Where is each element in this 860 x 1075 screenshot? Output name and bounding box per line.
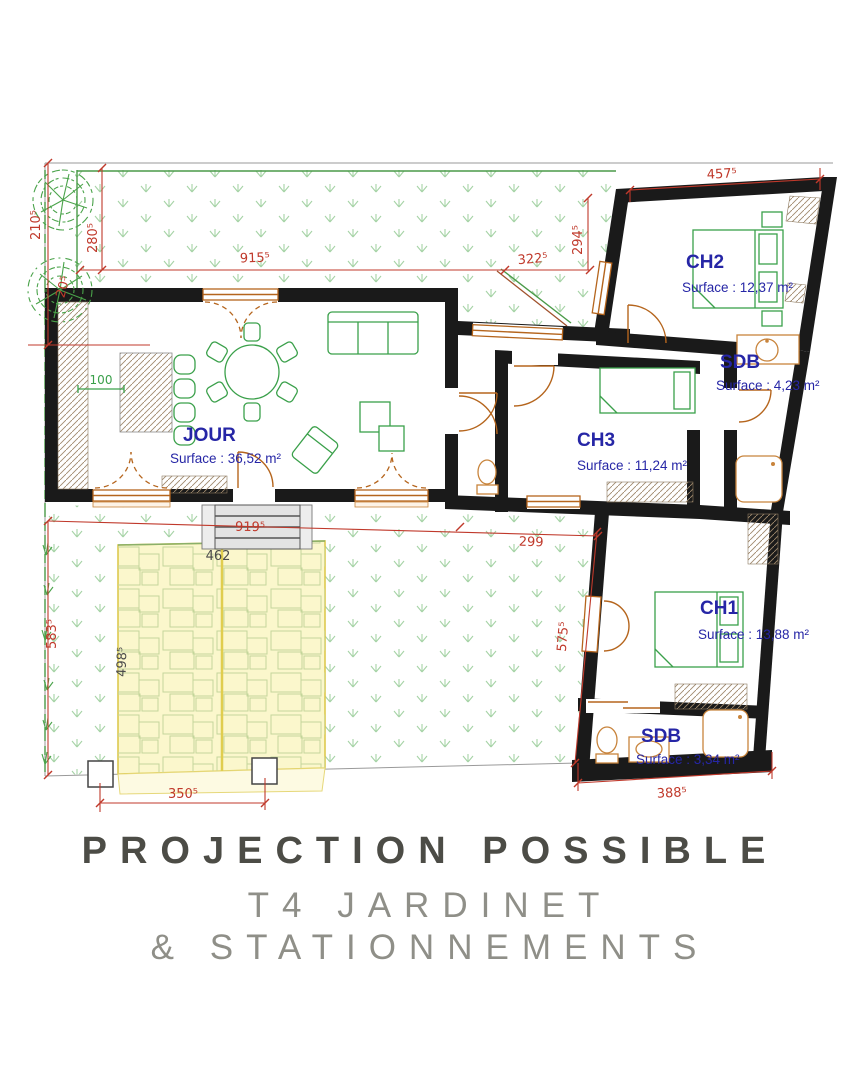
kitchen-counter: [120, 353, 172, 432]
floor-plan: 210⁵ 280⁵ 20⁵ 915⁵ 322⁵ 294⁵ 457⁵ 100 91…: [0, 0, 860, 826]
dim-ch2-setback: 294⁵: [571, 225, 586, 255]
ch3-bed: [600, 368, 695, 413]
dim-kitchen-clearance: 100: [90, 373, 113, 387]
dining-table: [205, 323, 299, 421]
jour-garden-door-arc: [205, 302, 241, 338]
side-table-2: [379, 426, 404, 451]
sdb2-shower: [703, 710, 748, 757]
room-surface-sdb2: Surface : 3,34 m²: [636, 752, 740, 767]
room-label-sdb2: SDB: [641, 726, 681, 747]
caption: PROJECTION POSSIBLE T4 JARDINET & STATIO…: [0, 830, 860, 969]
sdb1-door-arc: [739, 390, 771, 422]
room-surface-sdb1: Surface : 4,23 m²: [716, 378, 820, 393]
dim-sdb2-width: 388⁵: [656, 785, 687, 802]
dim-garden-south: 583⁵: [45, 619, 60, 649]
dim-terrace-width: 919⁵: [235, 520, 265, 536]
dim-parking-span: 350⁵: [168, 787, 198, 802]
room-surface-ch2: Surface : 12,37 m²: [682, 280, 794, 295]
dim-garden-depth: 280⁵: [86, 223, 101, 253]
dim-ch2-width: 457⁵: [706, 166, 737, 183]
dim-ch1-side: 575⁵: [555, 621, 573, 652]
sdb2-toilet: [596, 727, 618, 763]
wc-toilet: [477, 460, 498, 494]
room-surface-ch3: Surface : 11,24 m²: [577, 458, 688, 473]
sdb1-shower: [736, 456, 782, 502]
room-surface-ch1: Surface : 13,88 m²: [698, 627, 810, 642]
subtitle-line-1: T4 JARDINET: [0, 885, 860, 927]
sofa: [328, 312, 418, 354]
jour-hall-door-arc: [459, 393, 497, 431]
dim-path-width: 299: [518, 535, 543, 551]
subtitle-line-2: & STATIONNEMENTS: [0, 927, 860, 969]
room-label-ch1: CH1: [700, 598, 738, 619]
room-label-ch3: CH3: [577, 430, 615, 451]
room-label-sdb1: SDB: [720, 352, 760, 373]
page-title: PROJECTION POSSIBLE: [0, 830, 860, 873]
ch3-door-arc: [514, 366, 554, 406]
room-label-jour: JOUR: [183, 425, 236, 446]
dim-parking-width: 462: [206, 549, 231, 564]
dim-garden-right: 322⁵: [517, 251, 548, 269]
dim-garden-width: 915⁵: [240, 250, 271, 266]
room-label-ch2: CH2: [686, 252, 724, 273]
armchair: [291, 425, 340, 475]
floor-plan-page: 210⁵ 280⁵ 20⁵ 915⁵ 322⁵ 294⁵ 457⁵ 100 91…: [0, 0, 860, 1075]
hall-door-arc: [459, 396, 497, 434]
dim-left-upper: 210⁵: [29, 210, 44, 240]
dim-parking-depth: 498⁵: [114, 647, 130, 678]
ch1-door: [582, 596, 601, 652]
room-surface-jour: Surface : 36,52 m²: [170, 451, 282, 466]
